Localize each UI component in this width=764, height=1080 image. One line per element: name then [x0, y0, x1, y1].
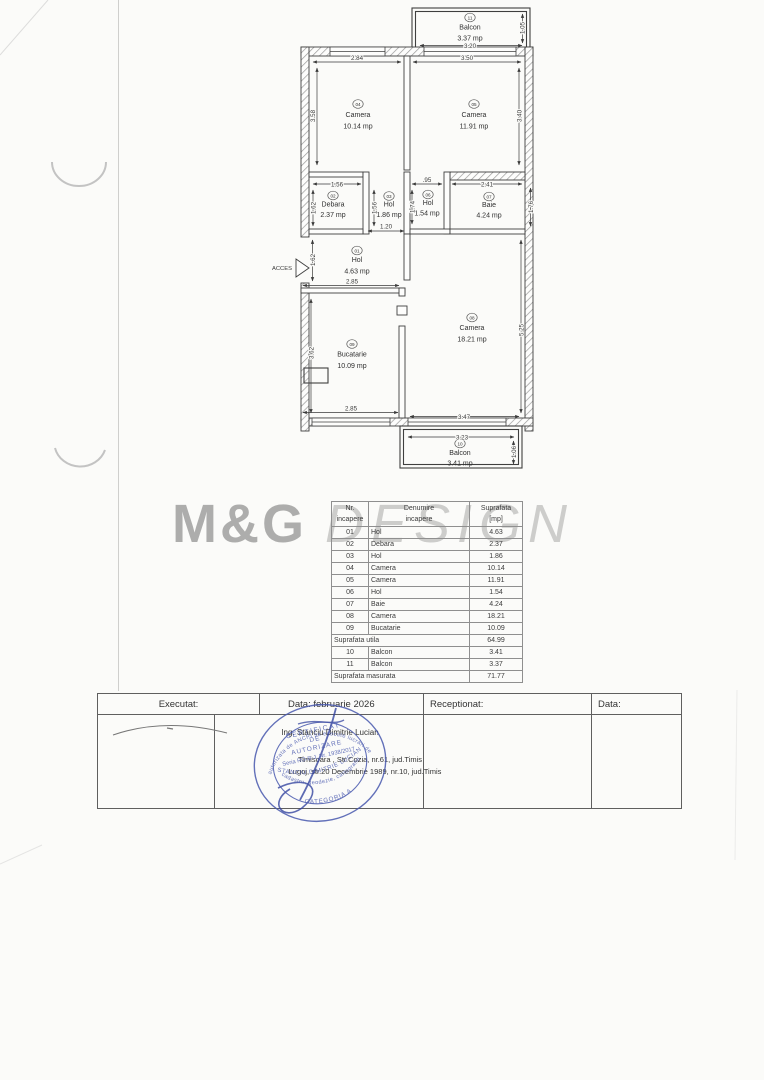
watermark-brand: M&G	[172, 494, 307, 554]
svg-text:1.86 mp: 1.86 mp	[376, 212, 401, 219]
scan-edge-bottomleft	[0, 845, 42, 864]
dim-label: 3.40	[517, 109, 524, 122]
svg-text:Camera: Camera	[462, 112, 487, 119]
executat-cell: Executat:	[98, 694, 259, 714]
svg-text:10: 10	[457, 441, 463, 446]
dim-label: 1.06	[511, 445, 518, 458]
svg-text:02: 02	[330, 193, 336, 198]
interior-walls	[301, 56, 525, 418]
table-row: 11Balcon3.37	[332, 659, 523, 671]
hole-punch-top	[52, 162, 106, 186]
suprafata-utila-value: 64.99	[470, 635, 523, 647]
svg-text:3.37 mp: 3.37 mp	[457, 36, 482, 43]
svg-text:4.63 mp: 4.63 mp	[344, 269, 369, 276]
room-label-debara-02: 02 Debara 2.37 mp	[320, 191, 345, 219]
dim-label: 3.47	[458, 414, 471, 421]
svg-text:06: 06	[425, 192, 431, 197]
header-denumire: Denumire	[404, 505, 434, 512]
svg-text:2.37 mp: 2.37 mp	[320, 212, 345, 219]
receptionat-cell: Receptionat:	[424, 694, 597, 714]
signature-arc	[105, 715, 245, 745]
data2-cell: Data:	[592, 694, 687, 714]
scanned-document-page: M&G DESIGN	[0, 0, 764, 1080]
dim-label: 3.20	[464, 43, 477, 50]
room-label-balcon-10: 10 Balcon 3.41 mp	[447, 439, 472, 467]
table-subtotal-row: Suprafata utila64.99	[332, 635, 523, 647]
stamp-body: autorizata de ANCPI sa execute lucrari d…	[243, 693, 396, 834]
svg-text:4.24 mp: 4.24 mp	[476, 213, 501, 220]
dim-label: 2.85	[346, 279, 359, 286]
floor-plan: ACCES 11 Balcon 3.37 mp 04 Camera 10.14 …	[250, 0, 560, 480]
table-row: 08Camera18.21	[332, 611, 523, 623]
dim-label: 5.25	[519, 323, 526, 336]
svg-text:Debara: Debara	[322, 202, 345, 209]
dim-label: 2.84	[351, 55, 364, 62]
svg-text:Hol: Hol	[423, 200, 434, 207]
room-label-camera-04: 04 Camera 10.14 mp	[343, 100, 372, 131]
room-label-balcon-11: 11 Balcon 3.37 mp	[457, 13, 482, 42]
svg-text:03: 03	[386, 194, 392, 199]
suprafata-masurata-label: Suprafata masurata	[332, 671, 470, 683]
hole-punch-bottom	[55, 448, 105, 466]
room-label-bucatarie-09: 09 Bucatarie 10.09 mp	[337, 340, 367, 370]
svg-text:Hol: Hol	[352, 257, 363, 264]
dim-label: 3.62	[309, 346, 316, 359]
room-label-hol-01: 01 Hol 4.63 mp	[344, 246, 369, 275]
svg-text:1.54 mp: 1.54 mp	[414, 211, 439, 218]
svg-text:Baie: Baie	[482, 202, 496, 209]
table-row: 03Hol1.86	[332, 551, 523, 563]
scan-edge-right	[735, 690, 737, 860]
room-label-hol-03: 03 Hol 1.86 mp	[376, 192, 401, 219]
dim-label: 3.58	[310, 109, 317, 122]
svg-text:04: 04	[355, 102, 361, 107]
dim-label: 3.50	[461, 55, 474, 62]
room-label-hol-06: 06 Hol 1.54 mp	[414, 190, 439, 217]
access-arrow: ACCES	[272, 259, 309, 277]
table-row: 06Hol1.54	[332, 587, 523, 599]
svg-text:Bucatarie: Bucatarie	[337, 352, 367, 359]
room-label-camera-08: 08 Camera 18.21 mp	[457, 313, 486, 343]
dim-label: 2.41	[481, 182, 494, 189]
dim-label: 1.05	[520, 21, 527, 34]
dimensions: 3.20 1.05 2.84 3.50 3.58 3.40 1.56 .95 2…	[303, 14, 535, 464]
certification-stamp: autorizata de ANCPI sa execute lucrari d…	[240, 690, 410, 855]
table-row: 04Camera10.14	[332, 563, 523, 575]
svg-text:3.41 mp: 3.41 mp	[447, 461, 472, 468]
svg-text:01: 01	[354, 248, 360, 253]
area-table: Nr.incapere Denumireincapere Suprafata[m…	[331, 501, 523, 683]
suprafata-masurata-value: 71.77	[470, 671, 523, 683]
svg-text:09: 09	[349, 342, 355, 347]
table-total-row: Suprafata masurata71.77	[332, 671, 523, 683]
svg-text:07: 07	[486, 194, 492, 199]
access-arrow-icon	[296, 259, 309, 277]
scan-edge-topleft	[0, 0, 48, 55]
table-header-row: Nr.incapere Denumireincapere Suprafata[m…	[332, 502, 523, 527]
dim-label: 1.74	[410, 200, 417, 213]
divider	[423, 694, 424, 808]
divider	[591, 694, 592, 808]
outer-walls	[301, 47, 533, 431]
table-row: 07Baie4.24	[332, 599, 523, 611]
svg-text:Camera: Camera	[346, 112, 371, 119]
room-label-baie-07: 07 Baie 4.24 mp	[476, 192, 501, 219]
dim-label: .95	[423, 177, 432, 184]
dim-label: 1.76	[528, 200, 535, 213]
suprafata-utila-label: Suprafata utila	[332, 635, 470, 647]
table-row: 10Balcon3.41	[332, 647, 523, 659]
table-row: 05Camera11.91	[332, 575, 523, 587]
header-nr: Nr.	[346, 505, 355, 512]
room-labels: 11 Balcon 3.37 mp 04 Camera 10.14 mp 05 …	[320, 13, 501, 467]
svg-text:Camera: Camera	[460, 325, 485, 332]
dim-label: 1.62	[311, 201, 318, 214]
svg-text:Balcon: Balcon	[459, 25, 481, 32]
svg-text:11.91 mp: 11.91 mp	[460, 124, 489, 131]
svg-text:10.14 mp: 10.14 mp	[343, 124, 372, 131]
dim-label: 2.85	[345, 406, 358, 413]
svg-text:05: 05	[471, 102, 477, 107]
dim-label: 1.56	[372, 201, 379, 214]
room-label-camera-05: 05 Camera 11.91 mp	[460, 100, 489, 131]
svg-text:10.09 mp: 10.09 mp	[337, 363, 366, 370]
table-row: 02Debara2.37	[332, 539, 523, 551]
dim-label: 1.20	[380, 224, 393, 231]
svg-text:08: 08	[469, 315, 475, 320]
table-row: 01Hol4.63	[332, 527, 523, 539]
dim-label: 1.62	[310, 253, 317, 266]
svg-text:18.21 mp: 18.21 mp	[457, 337, 486, 344]
dim-label: 1.56	[331, 182, 344, 189]
table-row: 09Bucatarie10.09	[332, 623, 523, 635]
access-label: ACCES	[272, 266, 292, 272]
svg-text:Hol: Hol	[384, 202, 395, 209]
header-suprafata: Suprafata	[481, 505, 511, 512]
dim-label: 3.23	[456, 435, 469, 442]
svg-text:11: 11	[468, 15, 473, 20]
svg-text:Balcon: Balcon	[449, 450, 471, 457]
